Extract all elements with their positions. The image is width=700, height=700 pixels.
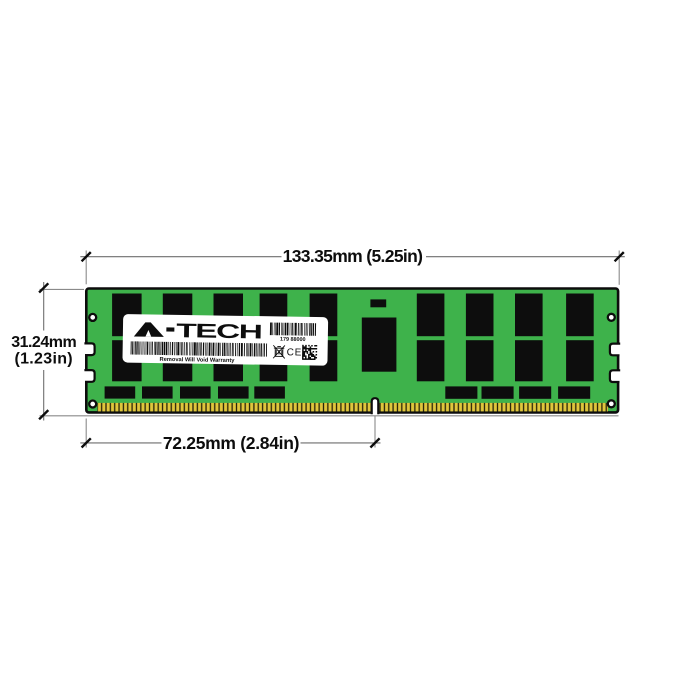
svg-text:133.35mm (5.25in): 133.35mm (5.25in)	[283, 246, 423, 266]
svg-text:Removal Will Void Warranty: Removal Will Void Warranty	[160, 357, 236, 364]
svg-text:72.25mm (2.84in): 72.25mm (2.84in)	[163, 433, 299, 453]
svg-text:(1.23in): (1.23in)	[14, 350, 72, 367]
svg-text:TECH: TECH	[176, 319, 261, 343]
svg-text:31.24mm: 31.24mm	[11, 334, 76, 351]
svg-text:179 88000: 179 88000	[280, 337, 306, 343]
svg-text:CE: CE	[287, 347, 303, 358]
